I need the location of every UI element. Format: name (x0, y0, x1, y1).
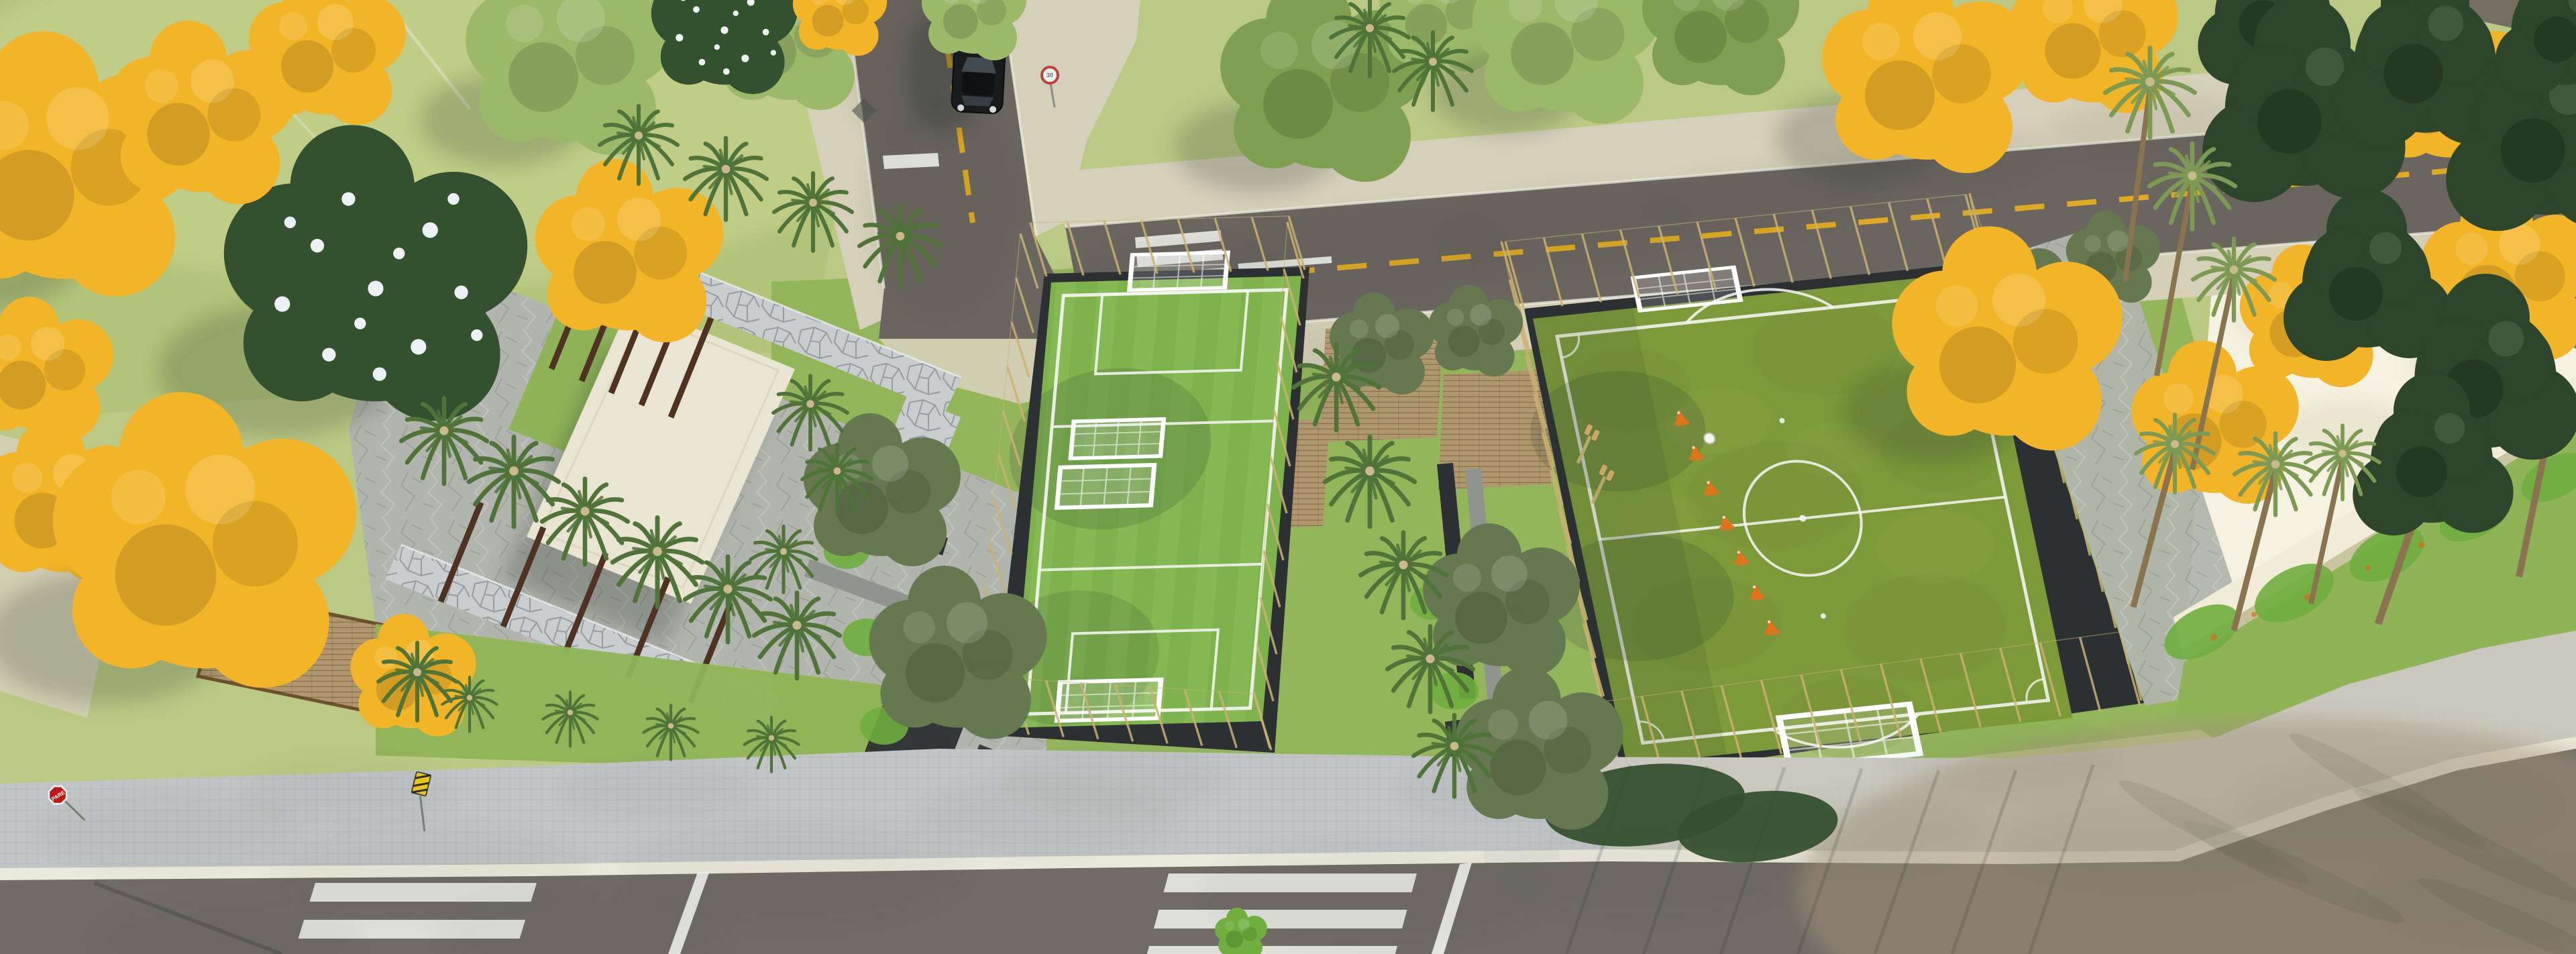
training-goal (1130, 252, 1228, 290)
scene: 30PARE (0, 0, 2576, 954)
ipe-tree (1822, 0, 2031, 173)
training-mini-goal (1057, 465, 1155, 508)
training-mini-goal (1071, 419, 1164, 459)
sidewalk-dapples (1000, 745, 1228, 812)
sidewalk-dapples (557, 765, 758, 818)
sidewalk-dapples (1878, 725, 2120, 792)
ipe-tree (249, 0, 406, 125)
training-goal (1057, 680, 1161, 721)
aerial-render-stage: Aerial architectural rendering of a cond… (0, 0, 2576, 954)
shrub-flowers (2365, 565, 2371, 570)
flowering-tree (651, 0, 798, 94)
aerial-render: Aerial architectural rendering of a cond… (0, 0, 2576, 954)
crosswalk-bar (1144, 946, 1398, 954)
tree (1472, 0, 1661, 123)
speed-sign-label: 30 (1046, 72, 1053, 78)
shrub-flowers (2418, 541, 2425, 548)
shrub-flowers (2210, 634, 2217, 641)
shrub-flowers (2251, 612, 2257, 617)
